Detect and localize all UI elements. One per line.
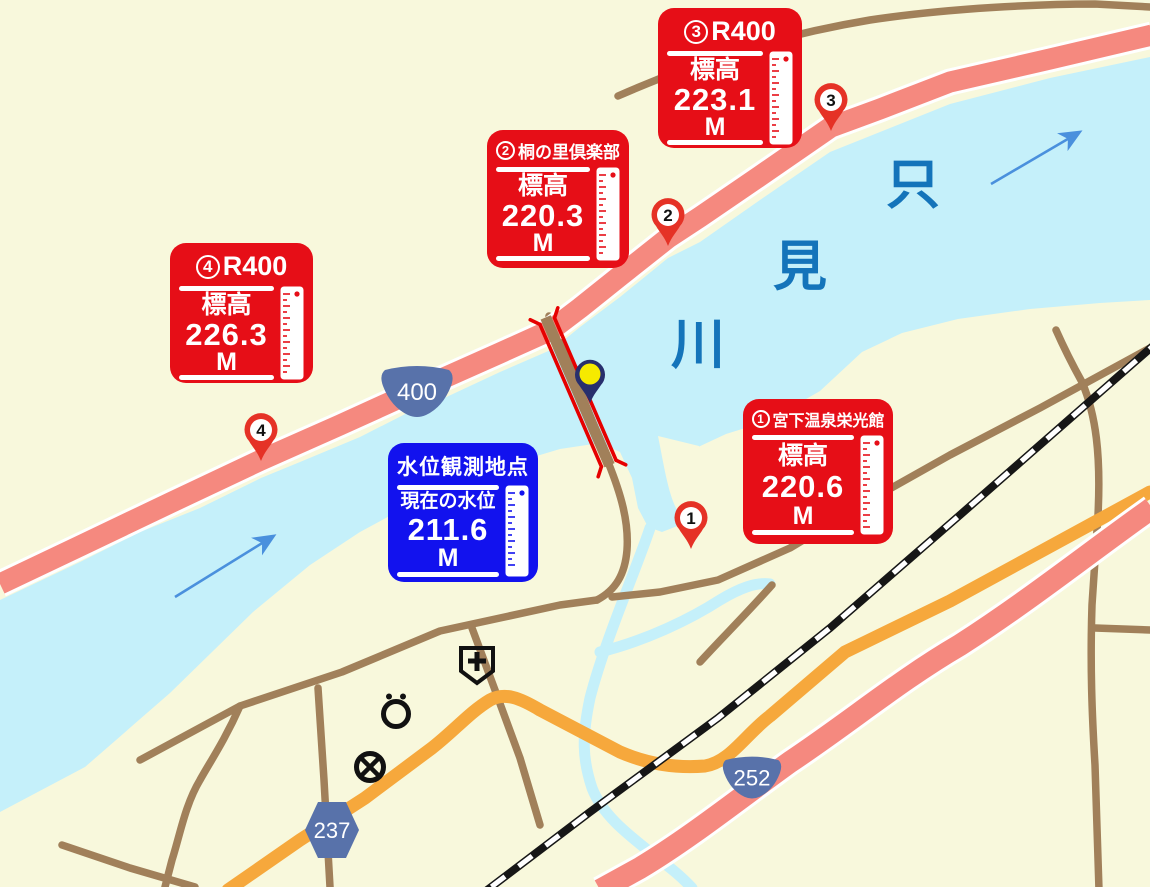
elevation-value: 220.6 (762, 471, 845, 502)
water-level-box: 水位観測地点 現在の水位 211.6 M (388, 443, 538, 582)
divider (752, 435, 854, 440)
elevation-label-name: 桐の里倶楽部 (518, 138, 620, 163)
police-station-symbol-icon (357, 754, 384, 781)
elevation-label-title: 4 R400 (179, 251, 304, 282)
elevation-field-label: 標高 (518, 173, 568, 199)
elevation-value: 223.1 (674, 84, 757, 115)
divider (179, 375, 274, 380)
water-level-value: 211.6 (408, 514, 489, 545)
elevation-label-box-1: 1 宮下温泉栄光館 標高 220.6 M (743, 399, 893, 544)
circled-number-badge: 1 (752, 410, 770, 428)
elevation-label-box-4: 4 R400 標高 226.3 M (170, 243, 313, 383)
elevation-field-label: 標高 (690, 57, 740, 83)
svg-text:2: 2 (663, 206, 672, 225)
route-shield-237-number: 237 (314, 818, 351, 843)
elevation-unit: M (533, 232, 554, 255)
elevation-label-name: R400 (711, 16, 776, 47)
route-252-road (600, 508, 1150, 887)
divider (496, 256, 590, 261)
elevation-field-label: 標高 (778, 443, 828, 469)
elevation-unit: M (793, 505, 814, 528)
ruler-icon (860, 435, 884, 535)
elevation-label-title: 3 R400 (667, 16, 793, 47)
svg-text:3: 3 (826, 91, 835, 110)
water-level-title: 水位観測地点 (397, 451, 529, 481)
route-shield-400-number: 400 (397, 379, 437, 406)
map-canvas: 400 252 237 3 2 4 1 只 見 川 3 R400 (0, 0, 1150, 887)
svg-text:4: 4 (256, 421, 266, 440)
circled-number-badge: 3 (684, 20, 708, 44)
divider (667, 140, 763, 145)
ruler-icon (505, 485, 529, 577)
ruler-icon (596, 167, 620, 261)
elevation-unit: M (216, 351, 237, 374)
water-level-field-label: 現在の水位 (400, 492, 495, 512)
ruler-icon (280, 286, 304, 380)
ruler-icon (769, 51, 793, 145)
river-name-char-3: 川 (666, 318, 730, 372)
water-level-unit: M (438, 547, 459, 570)
divider (397, 485, 499, 490)
elevation-label-box-3: 3 R400 標高 223.1 M (658, 8, 802, 148)
elevation-label-name: R400 (223, 251, 288, 282)
route-shield-252-number: 252 (734, 765, 771, 790)
river-name-char-2: 見 (768, 240, 832, 294)
marker-pin-1[interactable]: 1 (675, 501, 708, 549)
elevation-value: 220.3 (502, 200, 585, 231)
public-office-symbol-icon (384, 694, 409, 727)
elevation-label-box-2: 2 桐の里倶楽部 標高 220.3 M (487, 130, 629, 268)
river-name-char-1: 只 (881, 158, 945, 212)
svg-text:1: 1 (686, 509, 695, 528)
elevation-label-title: 1 宮下温泉栄光館 (752, 407, 884, 431)
circled-number-badge: 2 (496, 141, 515, 160)
divider (752, 530, 854, 535)
divider (397, 572, 499, 577)
elevation-value: 226.3 (185, 319, 268, 350)
elevation-unit: M (705, 116, 726, 139)
elevation-field-label: 標高 (201, 292, 251, 318)
circled-number-badge: 4 (196, 255, 220, 279)
elevation-label-title: 2 桐の里倶楽部 (496, 138, 620, 163)
elevation-label-name: 宮下温泉栄光館 (773, 407, 885, 431)
